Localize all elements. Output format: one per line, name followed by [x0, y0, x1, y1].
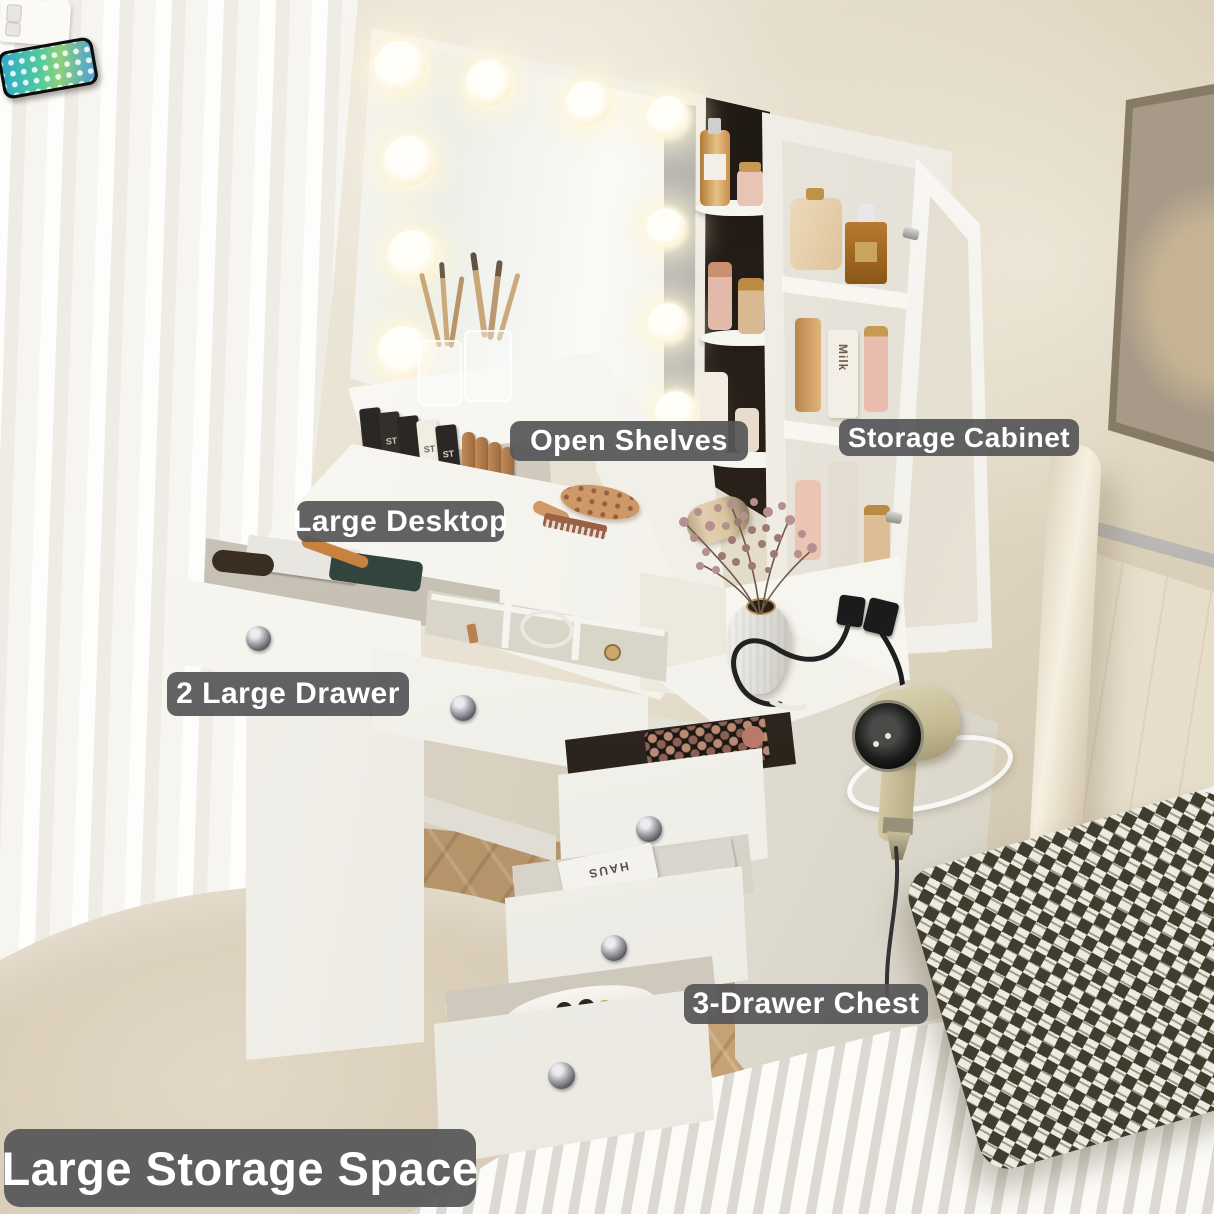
- gold-cap: [806, 188, 824, 200]
- magazine-title: HAUS: [586, 859, 630, 881]
- vanity-light-bulb: [566, 81, 610, 125]
- brush-cup: [418, 340, 462, 406]
- vanity-light-bulb: [646, 208, 686, 248]
- st-box-label: ST: [423, 443, 435, 454]
- crystal-cap: [858, 204, 874, 222]
- callout-2-large-drawer: 2 Large Drawer: [167, 672, 409, 716]
- dryer-highlight: [873, 741, 879, 747]
- st-box-label: ST: [442, 448, 454, 459]
- milk-cosmetic-tube: Milk: [828, 330, 858, 418]
- milk-tube-label: Milk: [836, 344, 850, 371]
- dryer-highlight: [885, 733, 891, 739]
- vanity-light-bulb: [647, 96, 689, 138]
- callout-3-drawer-chest: 3-Drawer Chest: [684, 984, 928, 1024]
- vanity-light-bulb: [384, 136, 434, 186]
- callout-large-desktop: Large Desktop: [297, 501, 504, 542]
- slim-amber-spray: [795, 318, 821, 412]
- hair-dryer-nozzle: [852, 700, 924, 772]
- tan-gold-cap-bottle: [738, 278, 764, 334]
- gold-cap: [739, 162, 761, 172]
- spray-cap: [708, 118, 721, 134]
- wristwatch: [604, 644, 621, 661]
- vanity-light-bulb: [648, 303, 688, 343]
- tan-flask: [790, 198, 842, 270]
- outlet-socket: [5, 22, 21, 37]
- pink-cosmetic-jar: [737, 170, 763, 206]
- charger-plug: [836, 594, 866, 627]
- pink-slim-bottle: [864, 326, 888, 412]
- drawer-knob: [246, 626, 271, 651]
- perfume-label: [855, 242, 877, 262]
- bedroom-vanity-product-photo: Milk ST ST ST: [0, 0, 1214, 1214]
- callout-storage-cabinet: Storage Cabinet: [839, 419, 1079, 456]
- drawer-knob: [636, 816, 662, 842]
- vanity-light-bulb: [388, 230, 438, 280]
- callout-open-shelves: Open Shelves: [510, 421, 748, 461]
- vanity-light-bulb: [374, 41, 426, 93]
- outlet-socket: [6, 4, 22, 23]
- st-box-label: ST: [385, 435, 397, 446]
- power-outlet: [0, 0, 71, 46]
- pink-tube: [795, 480, 821, 560]
- tall-clear-bottle: [828, 462, 858, 572]
- drawer-knob: [601, 935, 627, 961]
- rose-gold-bottle: [708, 262, 732, 330]
- vanity-light-bulb: [466, 60, 512, 106]
- vase-mouth: [746, 598, 776, 615]
- callout-large-storage-space: Large Storage Space: [4, 1129, 476, 1207]
- drawer-knob: [548, 1062, 575, 1089]
- bottle-label: [704, 154, 726, 180]
- brush-cup: [464, 330, 512, 402]
- drawer-knob: [450, 695, 476, 721]
